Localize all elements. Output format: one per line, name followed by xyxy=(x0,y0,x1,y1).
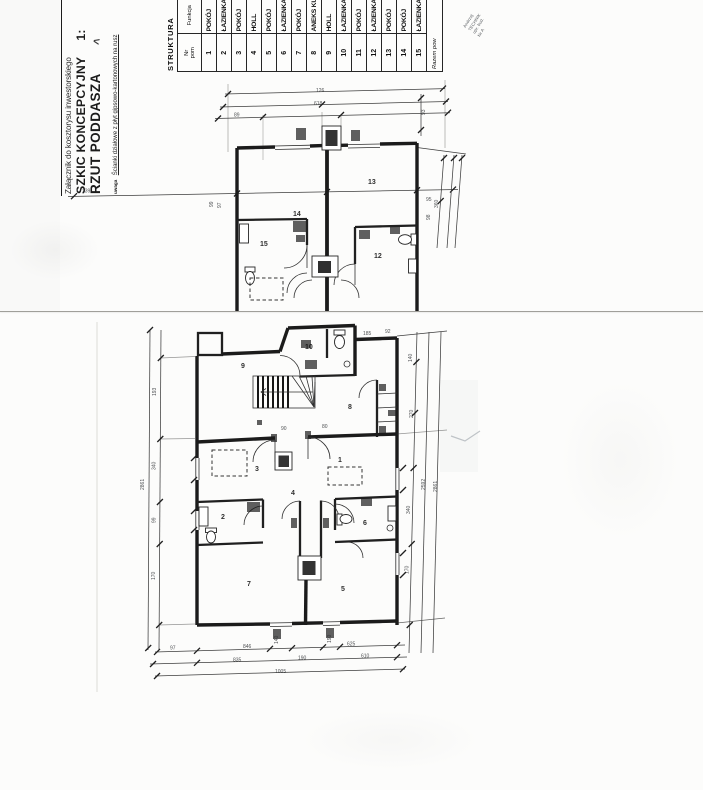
dimension-label: 193 xyxy=(152,387,158,396)
table-row: 2ŁAZIENKA xyxy=(217,0,232,72)
table-summary-row: Razem pow xyxy=(427,0,443,72)
chimney-flue xyxy=(322,126,341,150)
room-number-label: 7 xyxy=(247,581,251,588)
dimension-label: 140 xyxy=(274,635,280,644)
dimension-label: 846 xyxy=(243,644,252,650)
dimension-label: 360 xyxy=(434,199,440,208)
col-header-nr: Nrpom xyxy=(178,34,202,72)
dimension-label: 99 xyxy=(209,201,215,207)
dimension-label: 139 xyxy=(82,189,91,195)
room-number-label: 2 xyxy=(221,514,225,521)
room-number-label: 14 xyxy=(293,211,301,218)
room-number-label: 1 xyxy=(338,457,342,464)
table-row: 6ŁAZIENKA xyxy=(277,0,292,72)
scan-page-bottom: 193 340 99 170 2861 140 270 340 170 2592… xyxy=(0,312,703,790)
room-number-label: 9 xyxy=(241,363,245,370)
washbasin-fixture xyxy=(240,224,249,243)
room-number-label: 4 xyxy=(291,490,295,497)
table-row: 9HOLL xyxy=(322,0,337,72)
room-number-label: 15 xyxy=(260,241,268,248)
dimension-label: 340 xyxy=(406,505,412,514)
dimension-label: 126 xyxy=(316,88,325,94)
table-row: 11POKÓJ xyxy=(352,0,367,72)
staircase xyxy=(253,376,315,408)
washbasin-fixture xyxy=(387,506,396,531)
dimension-label: 170 xyxy=(151,571,157,580)
room-number-label: 10 xyxy=(305,344,313,351)
dimension-label: 835 xyxy=(233,658,242,664)
scan-page-top: Załącznik do kosztorysu inwestorskiego S… xyxy=(0,0,703,311)
col-header-funkcja: Funkcja xyxy=(178,0,202,34)
room-number-label: 12 xyxy=(374,253,382,260)
room-number-label: 3 xyxy=(255,466,259,473)
dimension-label: 93 xyxy=(421,109,427,115)
table-row: 15ŁAZIENKA xyxy=(412,0,427,72)
dimension-label: 1005 xyxy=(275,669,286,675)
table-title: STRUKTURA xyxy=(166,0,175,71)
chimney-flue xyxy=(275,452,292,470)
chimney-flue xyxy=(312,256,338,277)
dimension-label: 625 xyxy=(347,642,356,648)
lower-floor-plan-drawing: 193 340 99 170 2861 140 270 340 170 2592… xyxy=(95,318,525,698)
dimension-label: 618 xyxy=(314,101,323,107)
dimension-label: 89 xyxy=(234,113,240,119)
dimension-label: 2861 xyxy=(433,481,439,492)
table-row: 3POKÓJ xyxy=(232,0,247,72)
dimension-label: 140 xyxy=(408,353,414,362)
table-row: 4HOLL xyxy=(247,0,262,72)
structure-table-block: STRUKTURA Nrpom Funkcja 1POKÓJ 2ŁAZIENKA… xyxy=(166,0,443,72)
dashed-furniture-outline xyxy=(212,450,247,476)
table-row: 10ŁAZIENKA xyxy=(337,0,352,72)
dimension-label: 80 xyxy=(322,424,328,430)
chimney-notch xyxy=(198,333,222,355)
toilet-fixture xyxy=(334,330,345,349)
dimension-label: 92 xyxy=(385,329,391,335)
table-header-row: Nrpom Funkcja xyxy=(178,0,202,72)
chimney-flue xyxy=(298,556,321,580)
table-row: 12ŁAZIENKA xyxy=(367,0,382,72)
dimension-label: 2861 xyxy=(140,479,146,490)
table-row: 7POKÓJ xyxy=(292,0,307,72)
room-number-label: 13 xyxy=(368,179,376,186)
dimension-label: 270 xyxy=(409,409,415,418)
upper-floor-plan-drawing: 126 618 89 139 95 99 97 93 xyxy=(60,68,480,311)
dimension-label: 2592 xyxy=(421,479,427,490)
washbasin-fixture xyxy=(409,259,417,273)
structure-table: Nrpom Funkcja 1POKÓJ 2ŁAZIENKA 3POKÓJ 4H… xyxy=(177,0,443,72)
table-row: 5POKÓJ xyxy=(262,0,277,72)
room-number-label: 5 xyxy=(341,586,345,593)
dimension-label: 90 xyxy=(281,426,287,432)
dimension-label: 97 xyxy=(170,646,176,652)
dimension-label: 340 xyxy=(152,461,158,470)
drawing-scale: 1: xyxy=(74,29,88,40)
room-number-label: 6 xyxy=(363,520,367,527)
dashed-furniture-outline xyxy=(250,278,283,300)
table-summary: Razem pow xyxy=(427,0,443,72)
table-row: 13POKÓJ xyxy=(382,0,397,72)
dimension-label: 185 xyxy=(363,331,372,337)
dimension-label: 610 xyxy=(361,654,370,660)
table-row: 14POKÓJ xyxy=(397,0,412,72)
dimension-label: 98 xyxy=(426,214,432,220)
surveyor-stamp: Andrzej TECHNIK upr. bud. Nr A xyxy=(462,9,491,37)
washbasin-fixture xyxy=(199,507,208,526)
table-row: 1POKÓJ xyxy=(202,0,217,72)
dimension-label: 99 xyxy=(151,517,157,523)
toilet-fixture xyxy=(337,514,352,525)
dimension-label: 190 xyxy=(298,656,307,662)
scanned-sheet: Załącznik do kosztorysu inwestorskiego S… xyxy=(0,0,703,790)
dimension-label: 95 xyxy=(426,197,432,203)
room-number-label: 8 xyxy=(348,404,352,411)
toilet-fixture xyxy=(399,234,417,245)
toilet-fixture xyxy=(245,267,255,285)
table-row: 8ANEKS KUCHENNY xyxy=(307,0,322,72)
dashed-furniture-outline xyxy=(328,467,362,485)
dimension-label: 97 xyxy=(217,202,223,208)
toilet-fixture xyxy=(206,528,217,543)
dimension-label: 190 xyxy=(327,634,333,643)
